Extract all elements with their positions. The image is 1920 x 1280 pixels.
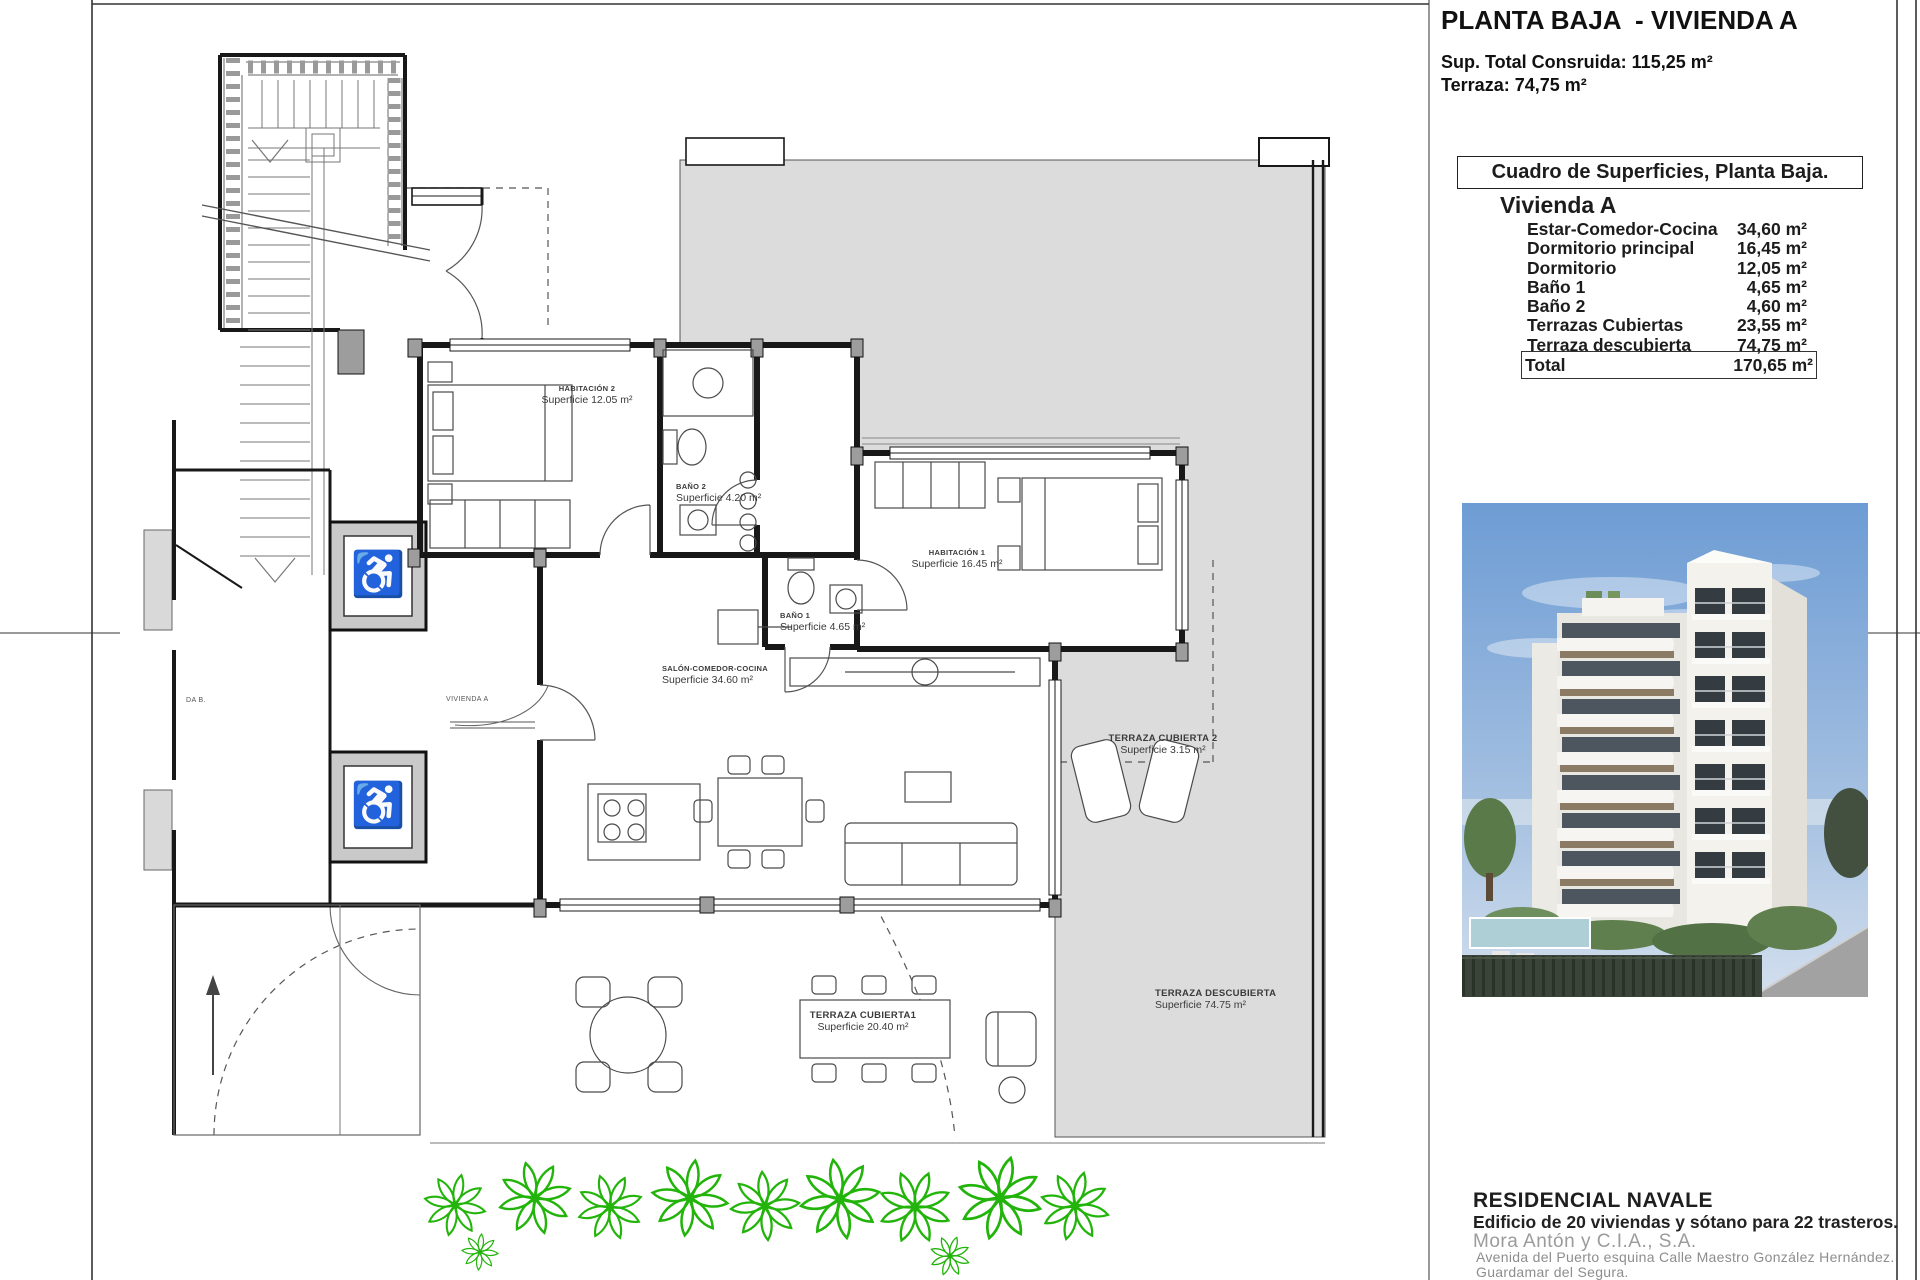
room-label-terraza-cubierta2: TERRAZA CUBIERTA 2 Superficie 3.15 m² <box>1108 733 1217 757</box>
plants-row <box>419 1141 1117 1280</box>
vivienda-a-leader-curve <box>455 686 548 726</box>
corner-door-arc <box>330 905 420 995</box>
wheelchair-icon: ♿ <box>351 548 406 600</box>
table-row: Dormitorio principal16,45 m² <box>1527 238 1807 257</box>
vivienda-a-tag: VIVIENDA A <box>446 696 489 703</box>
room-label-terraza-descubierta: TERRAZA DESCUBIERTA Superficie 74.75 m² <box>1155 988 1276 1012</box>
room-label-bano1: BAÑO 1 Superficie 4.65 m² <box>780 612 865 633</box>
plan-sheet: HABITACIÓN 2 Superficie 12.05 m² BAÑO 2 … <box>0 0 1920 1280</box>
entrance-double-door <box>412 188 482 350</box>
table-row: Baño 24,60 m² <box>1527 296 1807 315</box>
project-name: RESIDENCIAL NAVALE <box>1473 1189 1713 1213</box>
project-description: Edificio de 20 viviendas y sótano para 2… <box>1473 1212 1898 1233</box>
vivienda-b-tag: DA B. <box>186 697 206 704</box>
page-title: PLANTA BAJA - VIVIENDA A <box>1441 5 1798 36</box>
table-row: Baño 14,65 m² <box>1527 277 1807 296</box>
building-render-photo <box>1462 503 1868 997</box>
corridor-step-lines <box>450 722 535 728</box>
room-label-terraza-cubierta1: TERRAZA CUBIERTA1 Superficie 20.40 m² <box>810 1010 916 1034</box>
table-row: Terrazas Cubiertas23,55 m² <box>1527 315 1807 334</box>
tower-right <box>1687 550 1807 933</box>
room-label-habitacion1: HABITACIÓN 1 Superficie 16.45 m² <box>911 549 1002 570</box>
table-row: Dormitorio12,05 m² <box>1527 258 1807 277</box>
terrace-gray-area <box>144 138 1329 1137</box>
table-total-row: Total 170,65 m² <box>1521 351 1817 379</box>
room-label-bano2: BAÑO 2 Superficie 4.20 m² <box>676 483 761 504</box>
table-row: Estar-Comedor-Cocina34,60 m² <box>1527 219 1807 238</box>
wheelchair-icon: ♿ <box>351 779 406 831</box>
room-label-habitacion2: HABITACIÓN 2 Superficie 12.05 m² <box>541 385 632 406</box>
surface-table: Estar-Comedor-Cocina34,60 m² Dormitorio … <box>1527 219 1807 354</box>
dwelling-name: Vivienda A <box>1500 192 1616 219</box>
room-label-salon: SALÓN-COMEDOR-COCINA Superficie 34.60 m² <box>662 665 768 686</box>
stairwell <box>202 55 430 582</box>
surface-table-title: Cuadro de Superficies, Planta Baja. <box>1457 156 1863 189</box>
ramp-arrow <box>206 975 220 995</box>
address-line-1: Avenida del Puerto esquina Calle Maestro… <box>1476 1249 1895 1265</box>
built-area-line: Sup. Total Consruida: 115,25 m² <box>1441 52 1713 73</box>
terrace-area-line: Terraza: 74,75 m² <box>1441 75 1587 96</box>
